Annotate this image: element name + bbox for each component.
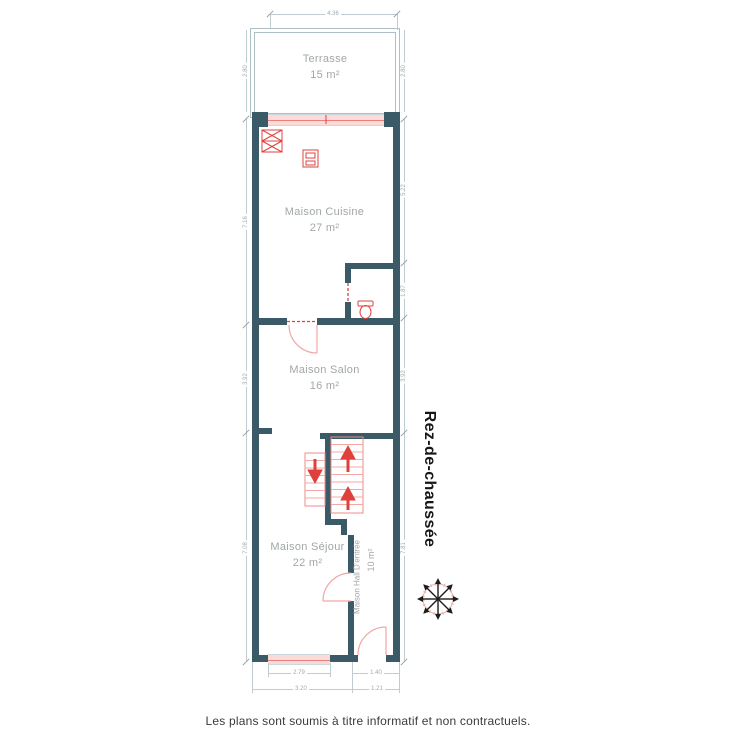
stairs-down-arrow — [308, 459, 322, 483]
plan-graphics — [0, 0, 736, 736]
floor-plan: Terrasse 15 m² Maison Cuisine 27 m² Mais… — [0, 0, 736, 736]
dim-ext — [397, 14, 398, 30]
dim-window-width: 2.79 — [291, 670, 307, 676]
toilet-icon — [358, 301, 373, 319]
dim-terrace-height-left: 2.80 — [243, 63, 249, 79]
dim-wc-right: 1.87 — [401, 283, 407, 299]
dim-line-left — [246, 119, 247, 662]
dim-terrace-height-right: 2.80 — [401, 63, 407, 79]
disclaimer-text: Les plans sont soumis à titre informatif… — [0, 714, 736, 728]
dim-kitchen-right: 5.22 — [401, 182, 407, 198]
dim-ext — [330, 663, 331, 677]
sink-icon — [303, 150, 318, 167]
dim-salon-left: 3.92 — [243, 371, 249, 387]
dim-hall-outer-width: 1.21 — [369, 686, 385, 692]
door-arc-salon — [289, 325, 317, 353]
dim-ext — [270, 14, 271, 28]
stairs-up-arrow — [341, 446, 355, 510]
dim-kitchen-left: 7.16 — [243, 214, 249, 230]
dim-hall-width: 1.40 — [368, 670, 384, 676]
dim-line-right — [404, 119, 405, 662]
dim-ext — [268, 663, 269, 677]
floor-title: Rez-de-chaussée — [420, 411, 438, 548]
stairs — [305, 437, 363, 513]
dim-sejour-left: 7.08 — [243, 540, 249, 556]
stove-icon — [262, 130, 282, 152]
dim-sejour-width: 3.20 — [293, 686, 309, 692]
compass-rose-icon — [417, 578, 459, 620]
door-arc-entrance — [358, 627, 386, 655]
door-arc-hall — [323, 573, 351, 601]
dim-salon-right: 3.92 — [401, 368, 407, 384]
dim-ext — [399, 662, 400, 693]
dim-sejour-right: 7.81 — [401, 540, 407, 556]
dim-terrace-width: 4.36 — [325, 11, 341, 17]
